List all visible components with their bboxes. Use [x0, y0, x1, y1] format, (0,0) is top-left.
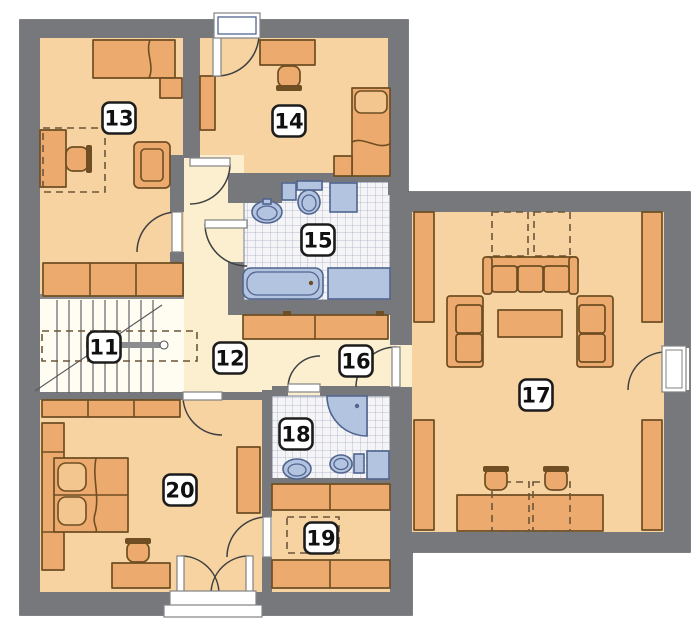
- room-label-19: 19: [305, 523, 338, 554]
- room-label-11: 11: [88, 332, 121, 363]
- toilet-tank-icon: [297, 181, 322, 190]
- sofa-cushion: [518, 266, 543, 292]
- bed-icon: [93, 40, 175, 78]
- stair-newel-marker: [160, 341, 168, 349]
- wardrobe-row-icon: [272, 560, 390, 588]
- cabinet-icon: [282, 183, 296, 200]
- desk-icon: [260, 40, 315, 65]
- wall-bath18-top-a: [272, 386, 288, 396]
- shower-counter-icon: [328, 268, 390, 299]
- pillow-icon: [355, 91, 387, 113]
- wall-pier: [287, 299, 303, 312]
- wall-13-14: [183, 38, 200, 158]
- wall-bath18-top-b: [320, 386, 390, 396]
- washing-machine-icon: [367, 451, 389, 479]
- stool-back-icon: [543, 466, 569, 472]
- door-leaf: [213, 34, 221, 76]
- stool-icon: [127, 542, 149, 562]
- door-leaf: [288, 384, 320, 392]
- room-label-12: 12: [214, 343, 247, 374]
- room-number: 12: [215, 347, 244, 371]
- floor-plan-drawing: 11 12 13 14 15 16 17 18: [0, 0, 700, 638]
- desk-icon: [112, 563, 170, 588]
- window-leaf: [246, 556, 253, 594]
- pillow-icon: [58, 497, 86, 525]
- room-number: 14: [274, 110, 303, 134]
- wardrobe-icon: [200, 76, 215, 130]
- floor-plan: 11 12 13 14 15 16 17 18: [0, 0, 700, 638]
- wall-bath15-corner: [228, 173, 282, 203]
- stool-back-icon: [483, 466, 509, 472]
- wall-left: [20, 20, 40, 615]
- wall-13-hall-a: [170, 155, 184, 212]
- desk-icon: [457, 495, 603, 531]
- stool-icon: [485, 469, 507, 490]
- toilet-icon: [330, 455, 352, 473]
- chair-back-icon: [276, 85, 302, 91]
- room-number: 19: [306, 527, 335, 551]
- wall-bottom-b: [254, 592, 412, 615]
- wall-unit-icon: [414, 420, 434, 530]
- wall-17-bottom: [412, 532, 690, 552]
- room-number: 13: [104, 107, 133, 131]
- wall-bottom-a: [20, 592, 176, 615]
- chair-icon: [278, 66, 300, 87]
- door-leaf: [183, 392, 222, 400]
- loveseat-cushion: [456, 305, 482, 333]
- sofa-armrest: [569, 257, 578, 294]
- loveseat-cushion: [579, 334, 605, 362]
- wall-17-right-a: [664, 192, 690, 348]
- dresser-handle: [376, 311, 384, 316]
- stool-icon: [545, 469, 567, 490]
- room-number: 20: [165, 479, 194, 503]
- wall-unit-icon: [642, 212, 662, 322]
- cabinet-row-icon: [42, 400, 180, 417]
- dresser-handle: [283, 311, 291, 316]
- side-table-icon: [334, 156, 352, 176]
- room-label-17: 17: [520, 380, 553, 411]
- sofa-armrest: [483, 257, 492, 294]
- room-label-15: 15: [302, 225, 335, 256]
- wall-20-19-b: [262, 557, 272, 592]
- wall-mid-a: [390, 195, 412, 345]
- loveseat-cushion: [456, 334, 482, 362]
- sofa-cushion: [492, 266, 517, 292]
- wall-20-18-a: [262, 390, 272, 517]
- wall-bath15-left: [228, 262, 244, 300]
- room-number: 18: [281, 423, 310, 447]
- door-leaf: [190, 158, 230, 166]
- chair-icon: [66, 147, 88, 171]
- stool-back-icon: [125, 538, 151, 544]
- tap-icon: [263, 199, 271, 204]
- room-label-20: 20: [164, 475, 197, 506]
- room-number: 17: [521, 384, 550, 408]
- wall-17-right-b: [664, 390, 690, 552]
- loveseat-cushion: [579, 305, 605, 333]
- chair-back-icon: [86, 145, 92, 173]
- washing-machine-icon: [330, 183, 357, 212]
- door-leaf: [392, 347, 400, 387]
- room-number: 11: [89, 336, 118, 360]
- wall-unit-icon: [642, 420, 662, 530]
- sofa-cushion: [544, 266, 569, 292]
- nightstand-icon: [160, 78, 182, 98]
- coffee-table-icon: [498, 310, 562, 337]
- wall-hall-room20-a: [20, 392, 183, 400]
- toilet-tank-icon: [354, 454, 364, 473]
- pillow-icon: [58, 463, 86, 491]
- desk-icon: [40, 130, 66, 187]
- window-bottom-sill: [164, 605, 262, 617]
- wall-unit-icon: [414, 212, 434, 322]
- room-number: 16: [341, 350, 370, 374]
- room-label-13: 13: [103, 103, 136, 134]
- hallway-furniture: [243, 311, 388, 339]
- wardrobe-row-icon: [43, 263, 183, 296]
- bathtub-drain: [309, 281, 313, 285]
- wall-17-top: [390, 192, 690, 212]
- window-leaf: [177, 556, 184, 594]
- room-label-16: 16: [340, 346, 373, 377]
- door-leaf: [263, 517, 271, 557]
- room-number: 15: [303, 229, 332, 253]
- door-leaf: [172, 212, 182, 252]
- room-label-18: 18: [280, 419, 313, 450]
- wardrobe-row-icon: [272, 484, 390, 510]
- room-label-14: 14: [273, 106, 306, 137]
- wall-right-upper: [388, 20, 408, 195]
- wall-mid-b: [390, 387, 412, 600]
- shower-drain: [355, 404, 359, 408]
- door-leaf: [205, 220, 247, 228]
- wall-bath15-bottom: [228, 300, 390, 315]
- cabinet-icon: [237, 447, 260, 513]
